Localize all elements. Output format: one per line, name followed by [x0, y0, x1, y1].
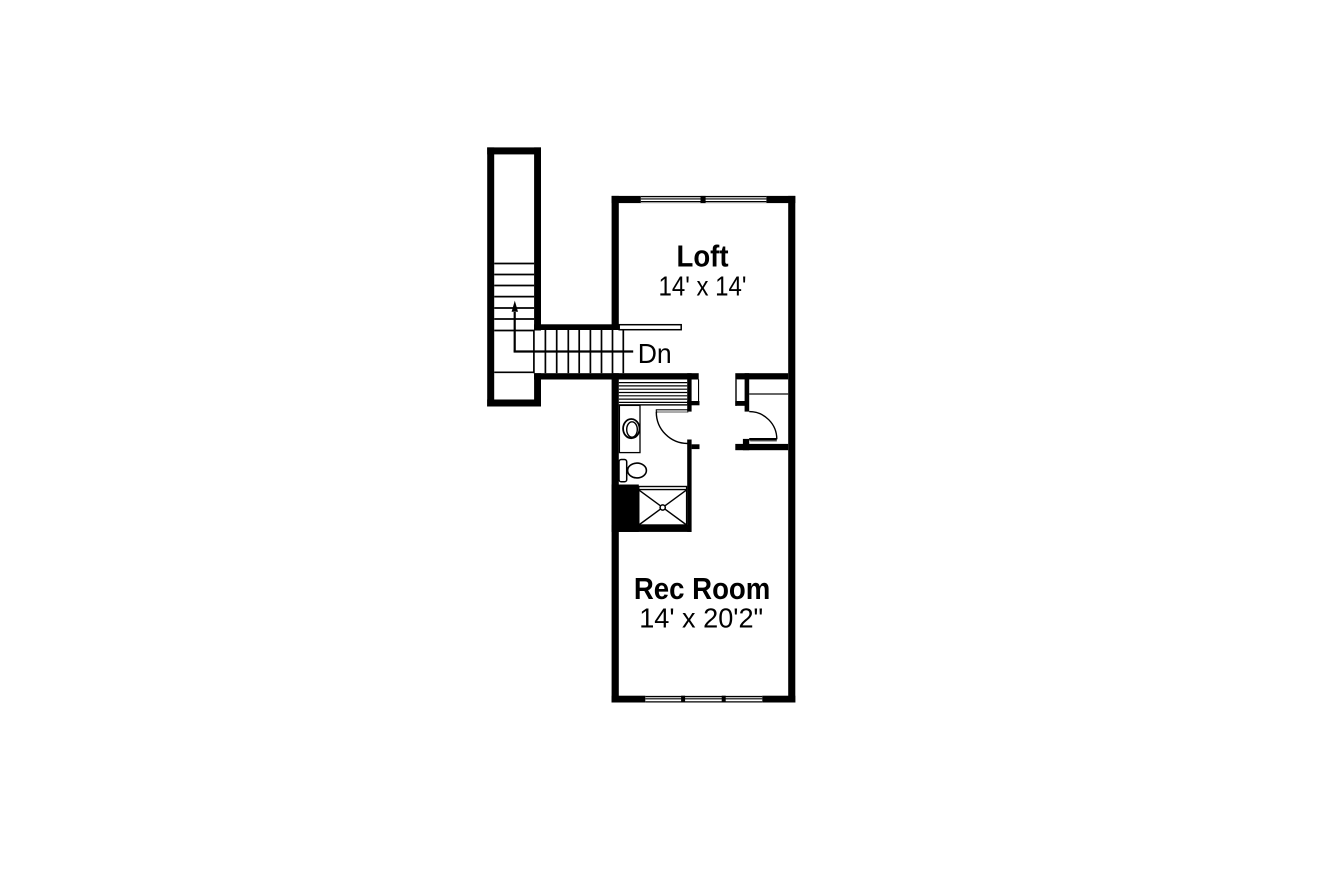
svg-text:Loft: Loft	[677, 239, 729, 274]
svg-text:14' x 20'2": 14' x 20'2"	[639, 603, 763, 634]
svg-text:14' x 14': 14' x 14'	[659, 271, 747, 302]
svg-text:Rec Room: Rec Room	[634, 571, 771, 606]
svg-text:Dn: Dn	[638, 338, 672, 369]
